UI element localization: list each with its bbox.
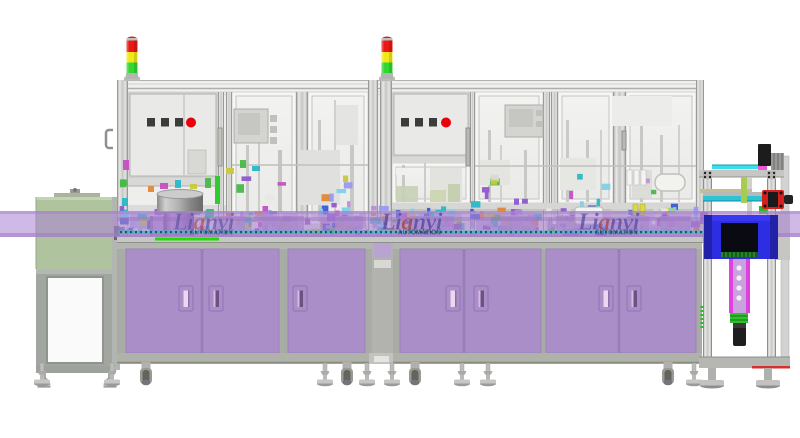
svg-text:AUTOMATION: AUTOMATION (190, 230, 233, 237)
svg-text:AUTOMATION: AUTOMATION (595, 230, 638, 237)
svg-text:AUTOMATION: AUTOMATION (398, 230, 441, 237)
